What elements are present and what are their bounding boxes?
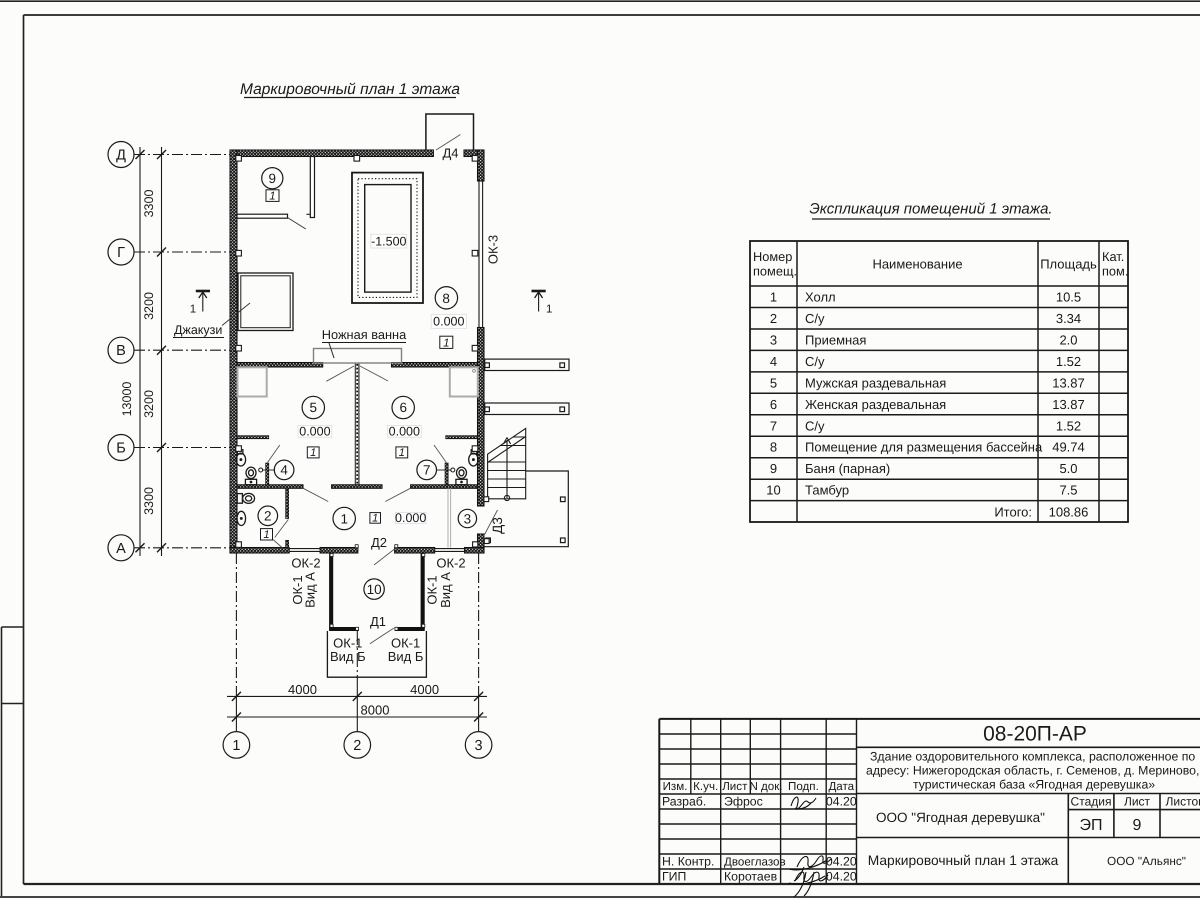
svg-text:13000: 13000 — [120, 382, 134, 417]
svg-text:ООО "Альянс": ООО "Альянс" — [1107, 854, 1186, 868]
svg-text:Листов: Листов — [1166, 795, 1200, 809]
svg-text:Д1: Д1 — [370, 614, 386, 629]
svg-text:0.000: 0.000 — [299, 424, 330, 438]
svg-text:туристическая база «Ягодная де: туристическая база «Ягодная деревушка» — [913, 778, 1155, 792]
svg-text:9: 9 — [770, 461, 777, 476]
svg-text:8: 8 — [442, 291, 450, 306]
svg-text:Джакузи: Джакузи — [174, 323, 222, 337]
svg-text:ОК-2: ОК-2 — [291, 556, 320, 571]
svg-text:6: 6 — [399, 400, 407, 415]
svg-text:Лист: Лист — [1124, 795, 1151, 809]
svg-text:Б: Б — [116, 441, 126, 457]
svg-text:Коротаев: Коротаев — [724, 869, 777, 883]
svg-text:2.0: 2.0 — [1059, 332, 1077, 347]
svg-text:0.000: 0.000 — [433, 315, 464, 329]
svg-text:3300: 3300 — [142, 190, 156, 218]
svg-text:Д3: Д3 — [490, 517, 505, 534]
svg-text:адресу: Нижегородская область,: адресу: Нижегородская область, г. Семено… — [866, 764, 1199, 778]
svg-text:9: 9 — [1133, 817, 1142, 834]
svg-text:Разраб.: Разраб. — [662, 795, 706, 809]
svg-text:Наименование: Наименование — [872, 257, 962, 272]
svg-text:С/у: С/у — [805, 311, 825, 326]
svg-text:3200: 3200 — [142, 292, 156, 320]
svg-text:Экспликация помещений 1 этажа.: Экспликация помещений 1 этажа. — [809, 201, 1052, 218]
svg-text:Д: Д — [116, 148, 126, 164]
svg-text:5: 5 — [310, 400, 318, 415]
svg-text:ООО "Ягодная деревушка": ООО "Ягодная деревушка" — [876, 810, 1045, 825]
svg-text:Д4: Д4 — [442, 146, 458, 161]
svg-text:Тамбур: Тамбур — [805, 483, 849, 498]
svg-text:В: В — [116, 343, 126, 359]
svg-text:С/у: С/у — [805, 418, 825, 433]
svg-text:2: 2 — [264, 509, 272, 524]
svg-text:Эфрос: Эфрос — [724, 795, 763, 809]
svg-text:04.20: 04.20 — [826, 854, 857, 868]
svg-text:Кат.: Кат. — [1102, 249, 1124, 264]
svg-text:7: 7 — [423, 463, 431, 478]
svg-text:3: 3 — [475, 738, 483, 754]
svg-text:3.34: 3.34 — [1056, 311, 1081, 326]
svg-text:Лист: Лист — [722, 780, 748, 793]
svg-text:49.74: 49.74 — [1052, 440, 1085, 455]
svg-text:1: 1 — [372, 512, 378, 524]
svg-text:1: 1 — [263, 529, 269, 541]
svg-text:N док.: N док. — [749, 780, 782, 793]
svg-text:Здание оздоровительного компле: Здание оздоровительного комплекса, распо… — [870, 750, 1195, 764]
svg-text:4000: 4000 — [410, 682, 439, 697]
svg-text:Номер: Номер — [753, 249, 792, 264]
svg-text:4: 4 — [280, 463, 288, 478]
svg-text:Двоеглазов: Двоеглазов — [724, 855, 786, 868]
svg-text:ОК-3: ОК-3 — [486, 235, 501, 264]
svg-text:Дата: Дата — [828, 780, 854, 793]
svg-text:1: 1 — [443, 337, 449, 349]
svg-text:1: 1 — [399, 447, 405, 459]
svg-text:1: 1 — [232, 738, 240, 754]
svg-text:04.20: 04.20 — [826, 795, 857, 809]
svg-text:1.52: 1.52 — [1056, 354, 1081, 369]
svg-text:ОК-2: ОК-2 — [436, 556, 465, 571]
svg-text:-1.500: -1.500 — [371, 234, 406, 248]
svg-text:Мужская раздевальная: Мужская раздевальная — [805, 375, 946, 390]
svg-text:108.86: 108.86 — [1049, 505, 1089, 520]
svg-text:8: 8 — [770, 440, 777, 455]
svg-text:1: 1 — [269, 190, 275, 202]
svg-text:Вид А: Вид А — [438, 572, 453, 608]
svg-text:0.000: 0.000 — [389, 424, 420, 438]
svg-text:2: 2 — [770, 311, 777, 326]
svg-text:10: 10 — [766, 483, 780, 498]
svg-text:3: 3 — [464, 511, 472, 526]
svg-text:1: 1 — [190, 304, 196, 316]
svg-text:3300: 3300 — [142, 487, 156, 515]
svg-text:Вид Б: Вид Б — [330, 649, 366, 664]
svg-text:пом.: пом. — [1102, 264, 1128, 279]
svg-text:08-20П-АР: 08-20П-АР — [983, 723, 1087, 746]
svg-text:Помещение для размещения бассе: Помещение для размещения бассейна — [805, 440, 1043, 455]
svg-text:0.000: 0.000 — [395, 511, 426, 525]
svg-text:Изм.: Изм. — [663, 780, 688, 793]
svg-text:ГИП: ГИП — [662, 869, 686, 883]
svg-text:13.87: 13.87 — [1052, 375, 1085, 390]
svg-text:Вид А: Вид А — [303, 572, 318, 608]
svg-text:А: А — [116, 541, 126, 557]
svg-text:6: 6 — [770, 397, 777, 412]
svg-text:1: 1 — [546, 304, 552, 316]
svg-text:9: 9 — [269, 171, 277, 186]
svg-text:Стадия: Стадия — [1071, 795, 1112, 809]
svg-text:3: 3 — [770, 332, 777, 347]
svg-text:Г: Г — [117, 245, 125, 261]
svg-text:Приемная: Приемная — [805, 332, 866, 347]
svg-text:Маркировочный план 1 этажа: Маркировочный план 1 этажа — [240, 81, 460, 98]
svg-text:1.52: 1.52 — [1056, 418, 1081, 433]
svg-text:С/у: С/у — [805, 354, 825, 369]
svg-text:Н. Контр.: Н. Контр. — [662, 854, 714, 868]
svg-text:7.5: 7.5 — [1059, 483, 1077, 498]
svg-text:Площадь: Площадь — [1040, 257, 1097, 272]
svg-text:Ножная ванна: Ножная ванна — [322, 327, 407, 342]
svg-text:8000: 8000 — [361, 703, 390, 718]
svg-text:13.87: 13.87 — [1052, 397, 1085, 412]
svg-text:Д2: Д2 — [371, 535, 387, 550]
svg-text:К.уч.: К.уч. — [693, 780, 718, 793]
svg-text:7: 7 — [770, 418, 777, 433]
svg-text:04.20: 04.20 — [826, 869, 857, 883]
svg-text:Женская раздевальная: Женская раздевальная — [805, 397, 946, 412]
svg-text:5.0: 5.0 — [1059, 461, 1077, 476]
svg-text:10.5: 10.5 — [1056, 290, 1081, 305]
svg-text:4000: 4000 — [288, 682, 317, 697]
svg-text:1: 1 — [310, 447, 316, 459]
svg-text:5: 5 — [770, 375, 777, 390]
svg-text:2: 2 — [353, 738, 361, 754]
svg-text:4: 4 — [770, 354, 777, 369]
svg-text:3200: 3200 — [142, 390, 156, 418]
svg-text:ЭП: ЭП — [1080, 817, 1103, 834]
svg-text:10: 10 — [367, 582, 382, 597]
svg-text:помещ.: помещ. — [753, 264, 797, 279]
svg-text:Маркировочный план 1 этажа: Маркировочный план 1 этажа — [868, 853, 1059, 868]
svg-text:Холл: Холл — [805, 290, 836, 305]
svg-text:Подп.: Подп. — [788, 780, 819, 793]
svg-text:Баня (парная): Баня (парная) — [805, 461, 890, 476]
svg-text:1: 1 — [770, 290, 777, 305]
svg-text:Вид Б: Вид Б — [388, 649, 424, 664]
svg-text:1: 1 — [340, 511, 348, 526]
svg-text:Итого:: Итого: — [994, 505, 1032, 520]
